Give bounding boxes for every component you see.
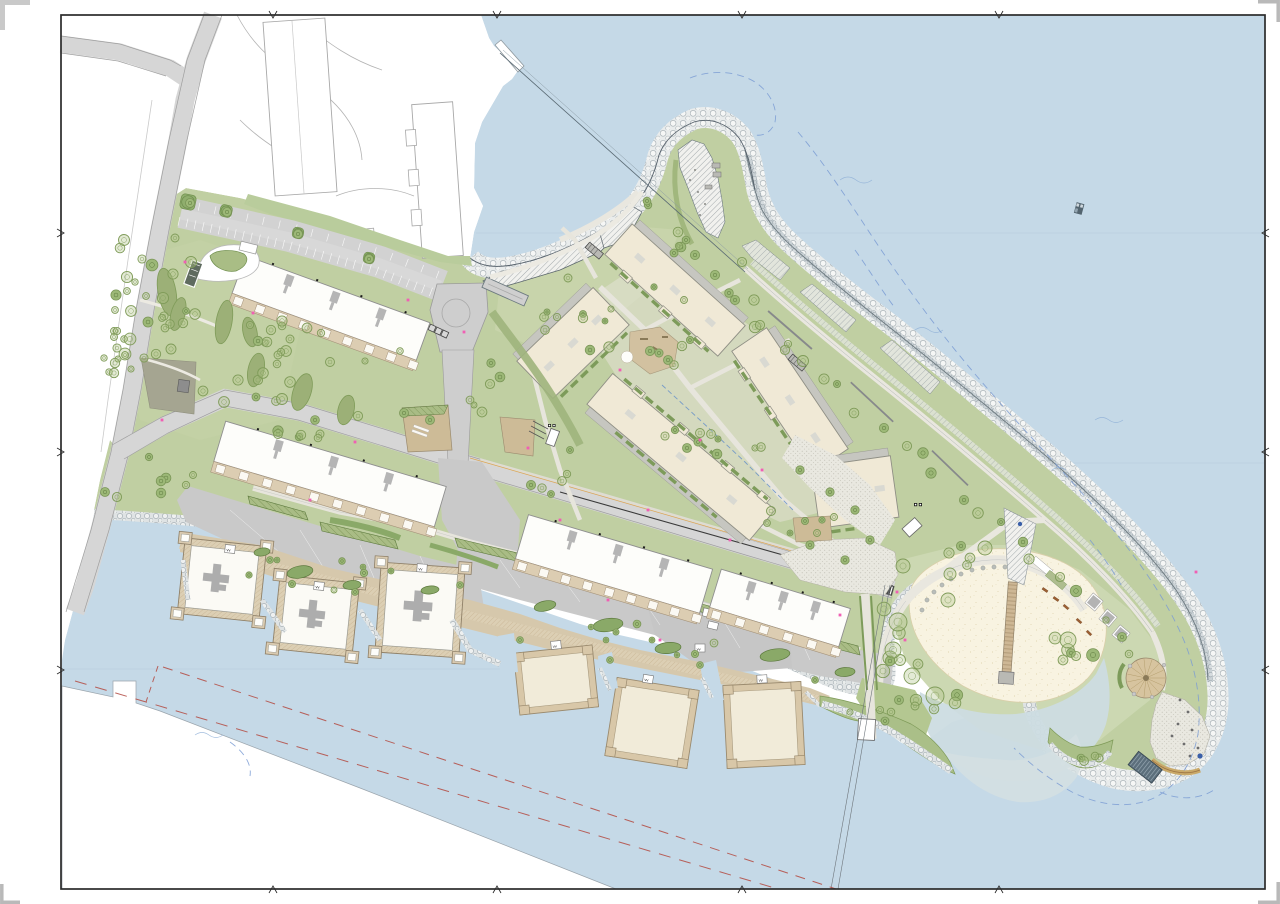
svg-text:vv: vv [315, 584, 320, 589]
svg-text:vv: vv [552, 643, 557, 648]
svg-text:vv: vv [226, 547, 231, 552]
svg-text:vv: vv [418, 566, 422, 571]
svg-text:vv: vv [759, 677, 763, 682]
svg-text:vv: vv [644, 677, 649, 683]
